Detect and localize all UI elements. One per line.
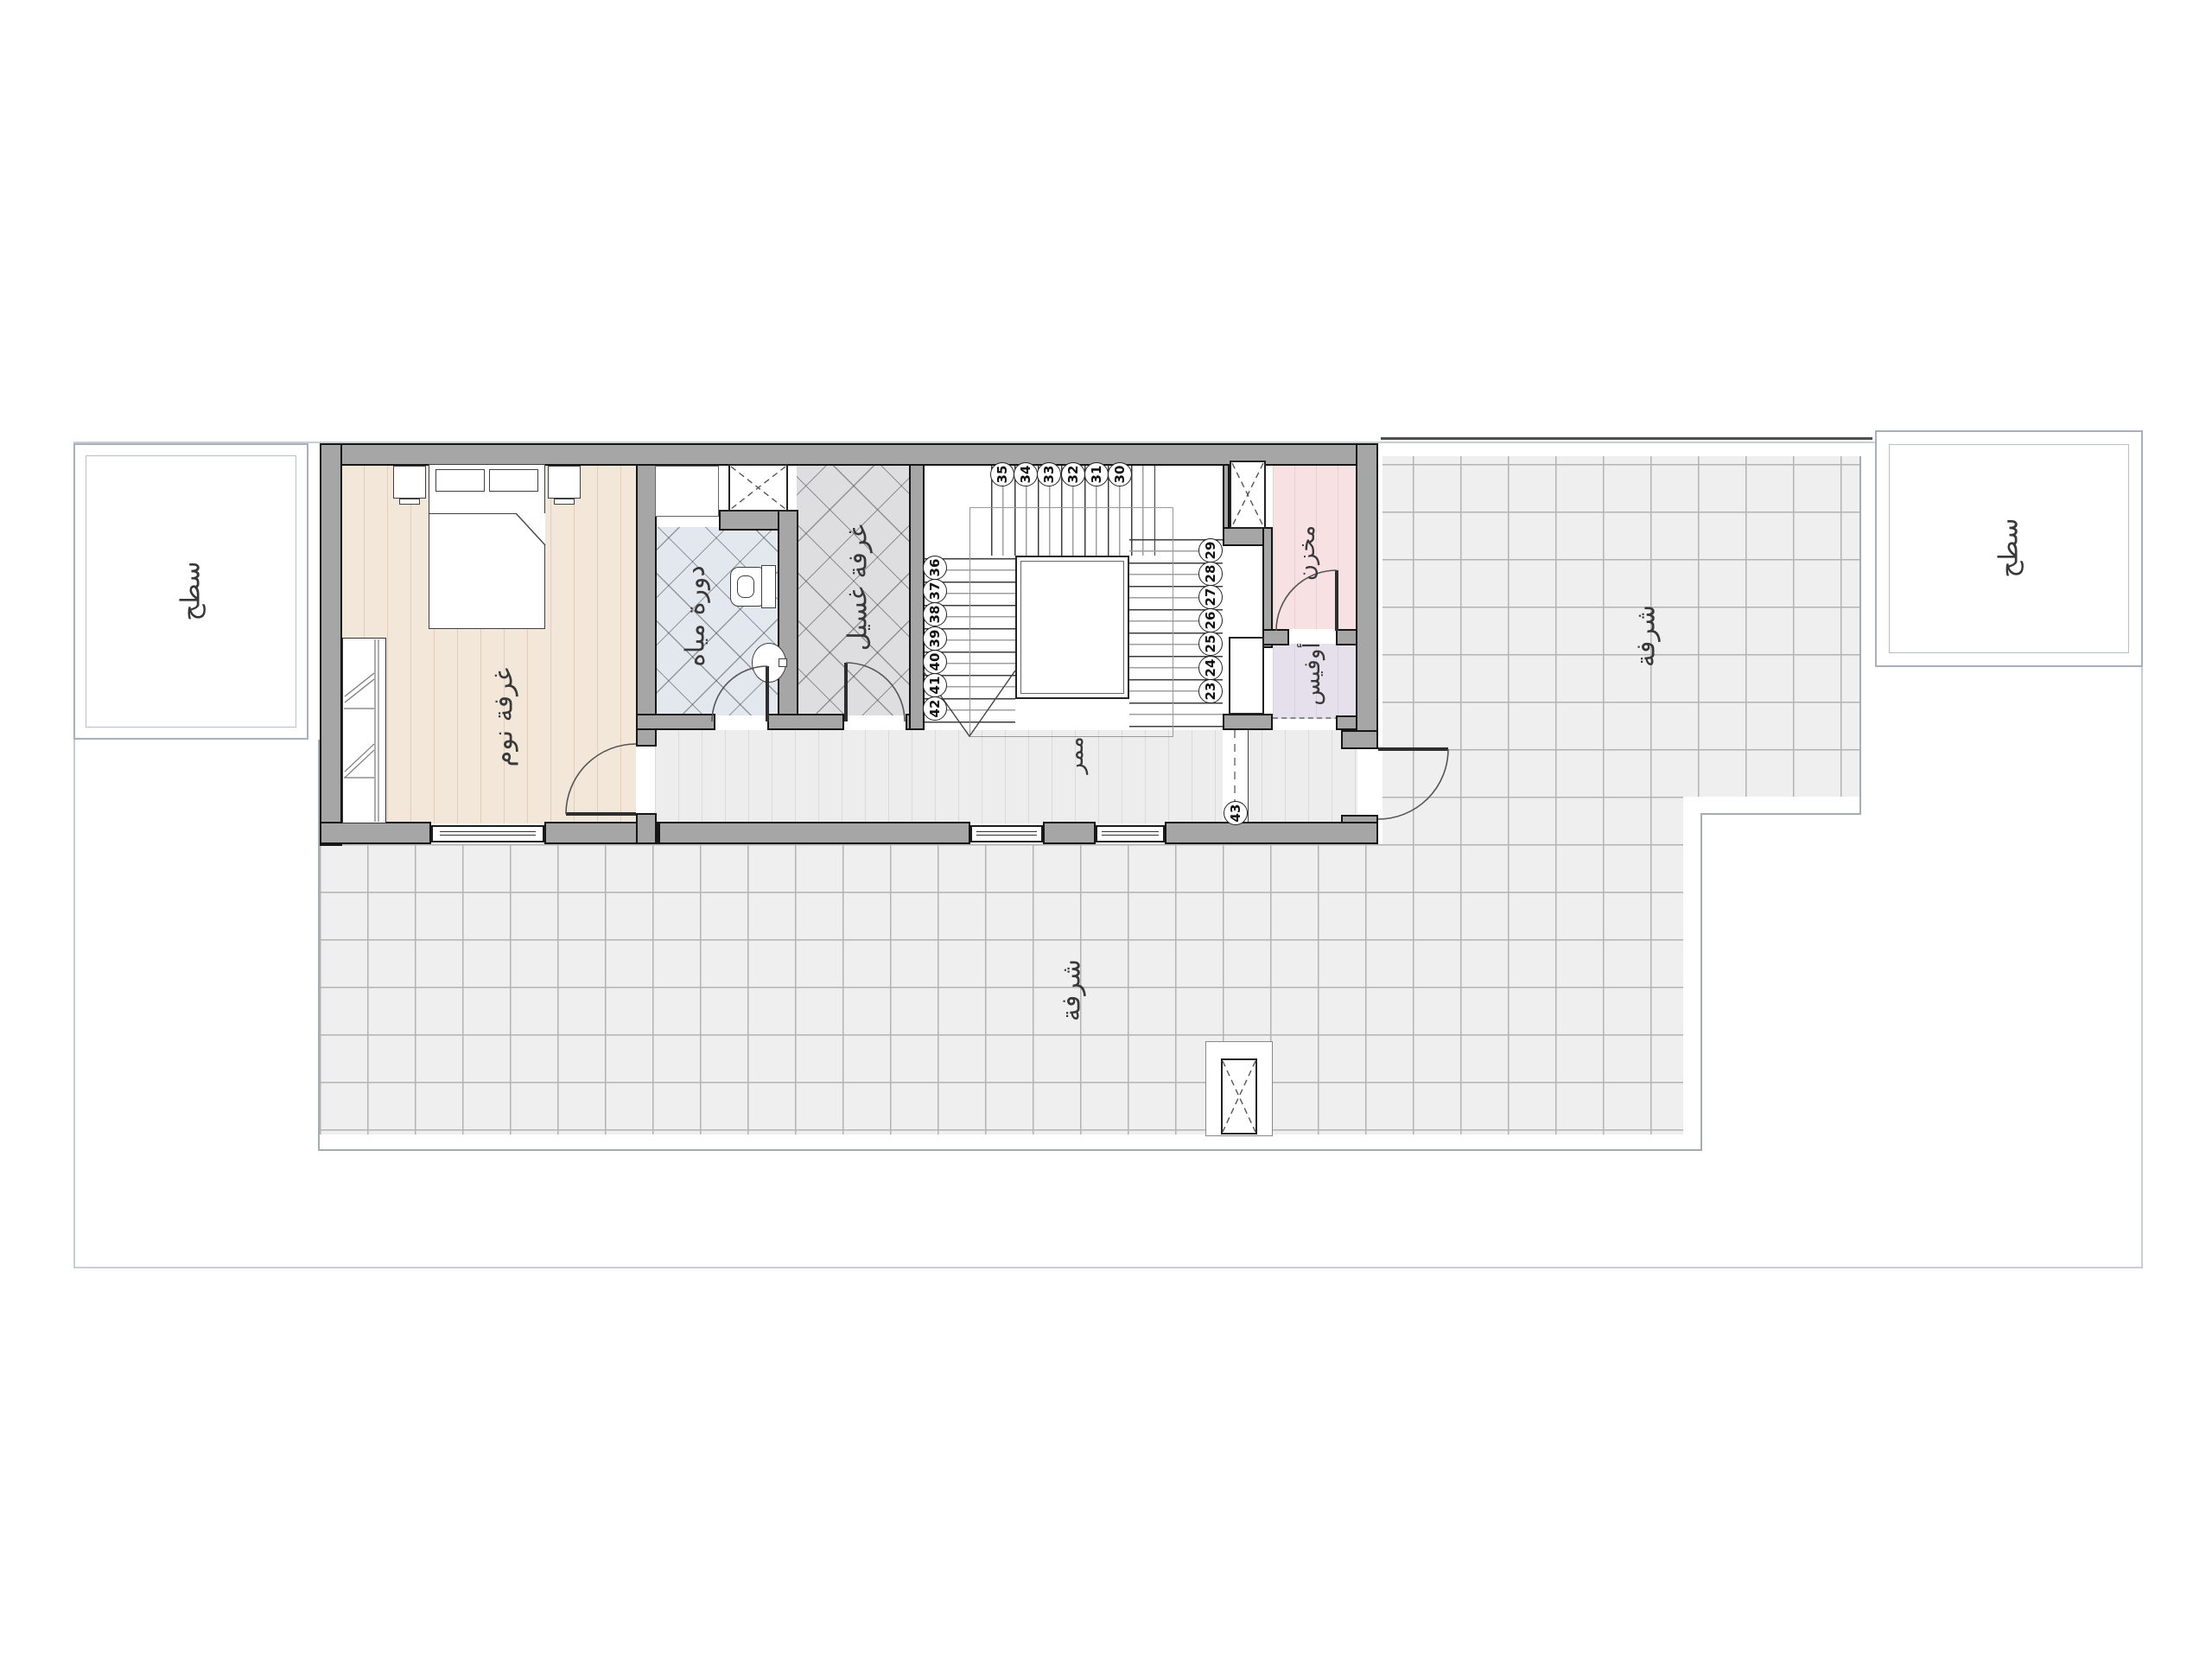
- stair-step-number: 42: [923, 696, 947, 721]
- wall-office-band-left: [1223, 714, 1273, 730]
- shaft-bathroom: [728, 464, 788, 512]
- wall-bath-laundry: [778, 510, 798, 728]
- nightstand-left: [393, 466, 426, 499]
- stair-well: [1015, 556, 1129, 699]
- stair-step-number: 30: [1108, 462, 1132, 486]
- laundry-label: غرفة غسيل: [843, 524, 874, 651]
- stair-step-number: 34: [1014, 462, 1038, 486]
- wall-bath-band-a: [636, 714, 715, 730]
- wall-laundry-stair: [909, 464, 925, 730]
- wall-right-upper: [1356, 443, 1378, 747]
- balcony-corner-floor: [1382, 797, 1683, 844]
- skylight-inner: [1221, 1058, 1257, 1135]
- bathroom-floor: [655, 527, 778, 715]
- balcony-bottom-label: شرفة: [1057, 959, 1087, 1021]
- nightstand-right-knob: [554, 499, 575, 505]
- roof-left-label: سطح: [176, 561, 207, 620]
- corridor-window-left: [970, 825, 1043, 842]
- corridor-label: ممر: [1063, 736, 1089, 773]
- blanket: [429, 513, 545, 629]
- balcony-boundary-bottom: [318, 1149, 1702, 1151]
- toilet-seat: [737, 575, 754, 598]
- bathroom-label: دورة مياه: [681, 565, 711, 667]
- balcony-right-label: شرفة: [1631, 605, 1662, 667]
- wall-bottom-5: [1165, 822, 1378, 844]
- balcony-right-floor: [1382, 456, 1859, 797]
- wall-bottom-3: [658, 822, 970, 844]
- stair-step-number: 27: [1198, 585, 1223, 609]
- wall-office-pier-right: [1336, 715, 1357, 730]
- vanity-box: [655, 466, 719, 517]
- balcony-boundary-right-mid: [1859, 456, 1861, 815]
- bedroom-window: [431, 825, 544, 842]
- balcony-boundary-step: [1700, 813, 1861, 815]
- balcony-bottom-floor: [320, 844, 1683, 1135]
- floor-plan-canvas: سطح سطح: [0, 0, 2212, 1659]
- pillow-right: [489, 469, 538, 492]
- wall-left: [320, 443, 342, 846]
- roof-right-label: سطح: [1994, 518, 2024, 577]
- storage-label: مخزن: [1294, 525, 1320, 581]
- wall-bedroom-bath-upper: [636, 464, 657, 747]
- stair-step-number: 28: [1198, 562, 1223, 586]
- stair-step-number: 24: [1198, 656, 1223, 680]
- wall-storage-pier-right: [1336, 629, 1357, 645]
- stair-step-number: 29: [1198, 538, 1223, 563]
- toilet-tank: [761, 565, 776, 608]
- wall-storage-pier-left: [1262, 629, 1289, 645]
- stair-step-number: 41: [923, 673, 947, 697]
- wall-bedroom-bath-lower: [636, 813, 657, 844]
- stair-step-number: 36: [923, 556, 947, 580]
- cabinet-box: [1229, 637, 1264, 715]
- wall-bottom-1: [320, 822, 431, 844]
- stair-step-number: 31: [1084, 462, 1109, 486]
- sink-tap: [779, 658, 787, 667]
- corridor-window-right: [1096, 825, 1165, 842]
- stair-step-number: 37: [923, 579, 947, 603]
- wall-bath-band-b: [767, 714, 844, 730]
- stair-step-number: 23: [1198, 679, 1223, 703]
- stair-step-number: 32: [1061, 462, 1085, 486]
- wall-bottom-4: [1043, 822, 1096, 844]
- corridor-floor: [655, 730, 1357, 823]
- wall-top: [320, 443, 1378, 466]
- stair-step-number: 43: [1224, 801, 1248, 825]
- office-label: أوفيس: [1300, 642, 1325, 705]
- pillow-left: [435, 469, 485, 492]
- balcony-boundary-right-low: [1700, 813, 1702, 1151]
- stair-step-number: 40: [923, 650, 947, 674]
- nightstand-right: [548, 466, 581, 499]
- stair-step-number: 39: [923, 626, 947, 651]
- wardrobe: [342, 638, 386, 823]
- shaft-stair: [1230, 461, 1266, 529]
- nightstand-left-knob: [399, 499, 420, 505]
- stair-step-number: 35: [990, 462, 1014, 486]
- bedroom-label: غرفة نوم: [489, 668, 519, 767]
- wall-right-door-pier-top: [1341, 730, 1378, 749]
- balcony-top-edge: [1381, 437, 1872, 440]
